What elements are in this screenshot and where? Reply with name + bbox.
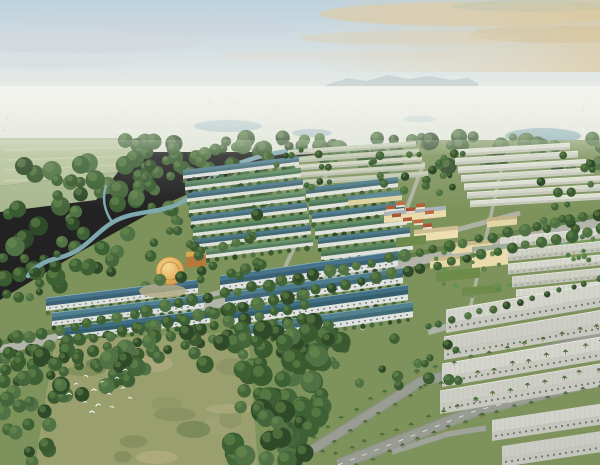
tree [369,322,374,327]
tree [278,250,282,254]
tree [260,252,264,256]
tree [360,324,365,329]
tree [379,322,383,326]
warm-light-overlay [320,0,600,72]
tree [304,246,310,252]
tree [166,328,170,332]
cloud [20,13,240,27]
tree [296,247,301,252]
tree [343,327,347,331]
tree [232,254,237,259]
aerial-masterplan-rendering [0,0,600,465]
tree [206,258,211,263]
tree [174,326,179,331]
tree [250,252,255,257]
tree [287,248,292,253]
clubhouse-plaza [139,284,187,298]
tree [242,254,247,259]
warm-light [320,0,600,72]
tree [406,318,410,322]
render-canvas [0,0,600,465]
tree [388,320,393,325]
tree [224,256,228,260]
tree [130,332,134,336]
tree [215,257,220,262]
tree [397,319,402,324]
tree [46,311,51,316]
tree [268,250,274,256]
tree [352,325,356,329]
